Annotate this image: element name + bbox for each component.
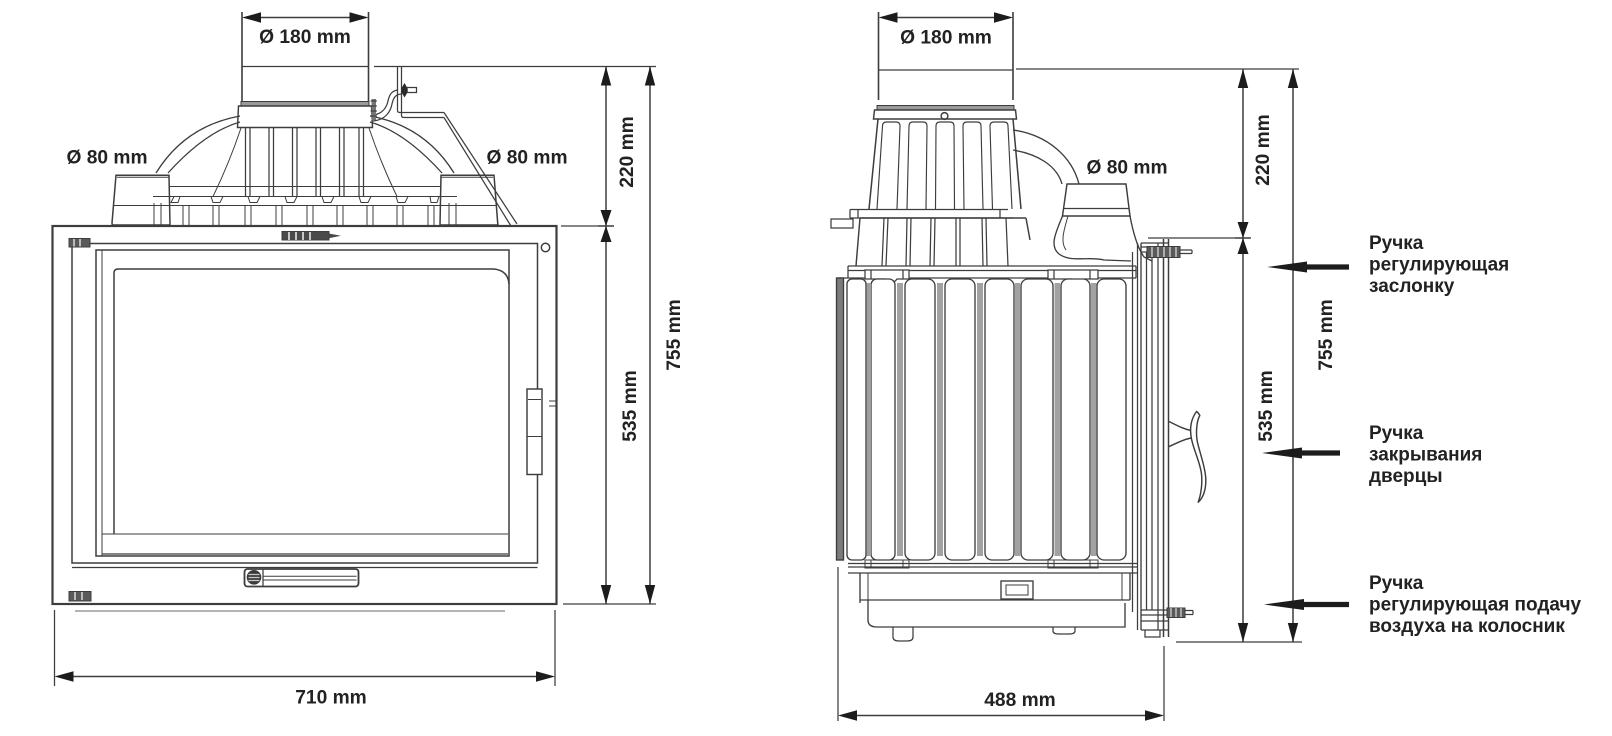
svg-text:755 mm: 755 mm [1316,299,1337,370]
svg-text:488 mm: 488 mm [984,690,1055,711]
svg-text:воздуха на колосник: воздуха на колосник [1369,616,1565,637]
svg-text:Ø 80 mm: Ø 80 mm [486,148,567,169]
svg-text:регулирующая подачу: регулирующая подачу [1369,595,1582,616]
svg-text:710 mm: 710 mm [295,688,366,709]
svg-text:регулирующая: регулирующая [1369,255,1509,276]
svg-text:535 mm: 535 mm [620,370,641,441]
svg-text:Ø 180 mm: Ø 180 mm [259,27,351,48]
svg-text:Ø 80 mm: Ø 80 mm [66,148,147,169]
svg-text:220 mm: 220 mm [1253,114,1274,185]
svg-text:755 mm: 755 mm [664,299,685,370]
svg-text:закрывания: закрывания [1369,445,1482,466]
svg-text:Ø 180 mm: Ø 180 mm [900,28,992,49]
svg-text:Ручка: Ручка [1369,233,1424,254]
svg-text:заслонку: заслонку [1369,276,1455,297]
svg-text:Ручка: Ручка [1369,573,1424,594]
svg-text:220 mm: 220 mm [617,116,638,187]
svg-text:535 mm: 535 mm [1256,370,1277,441]
svg-text:дверцы: дверцы [1369,466,1443,487]
svg-text:Ручка: Ручка [1369,423,1424,444]
svg-text:Ø 80 mm: Ø 80 mm [1086,158,1167,179]
